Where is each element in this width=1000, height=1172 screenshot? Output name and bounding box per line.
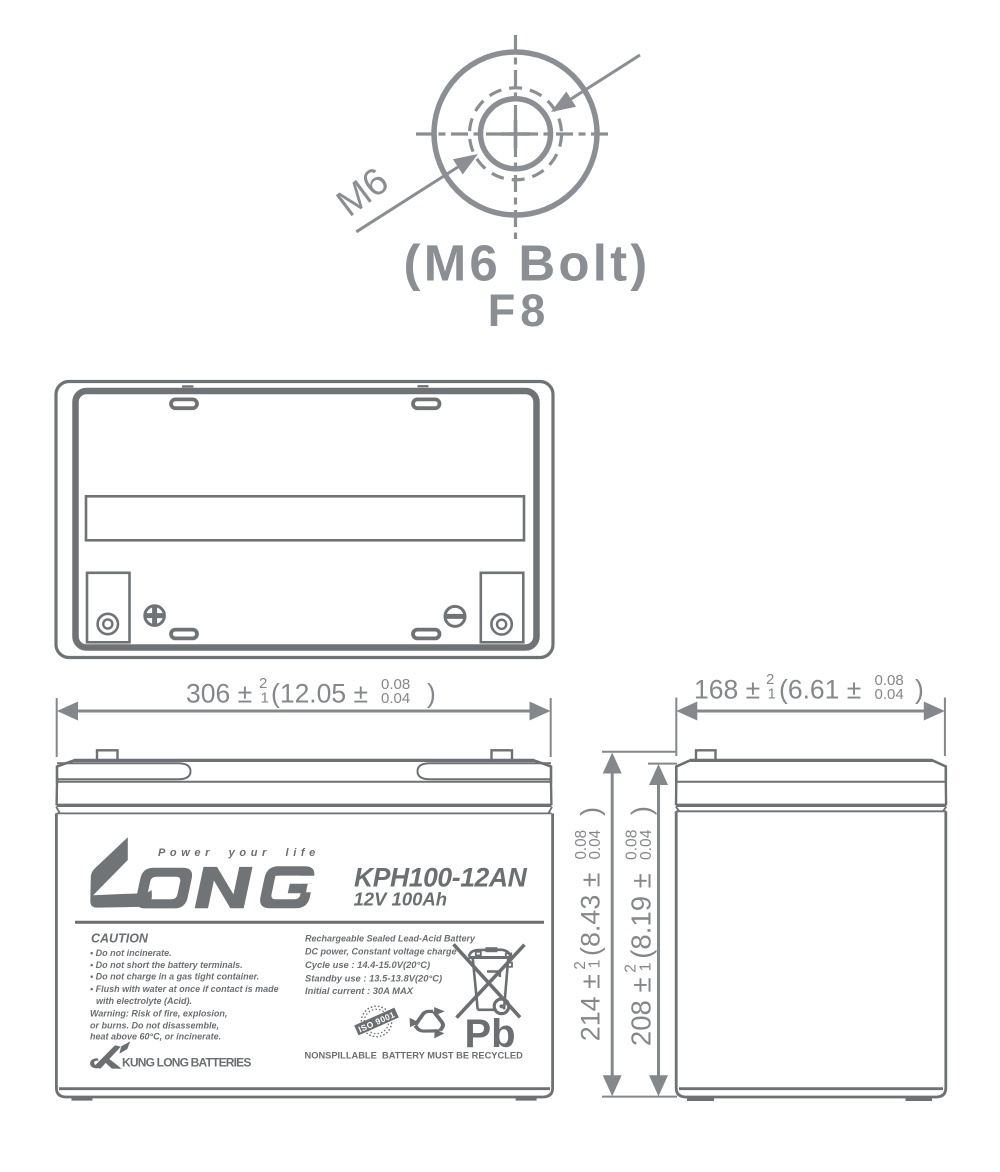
svg-text:Pb: Pb [465, 1012, 516, 1056]
svg-text:Cycle use : 14.4-15.0V(20°C): Cycle use : 14.4-15.0V(20°C) [305, 959, 430, 970]
svg-text:1: 1 [587, 960, 604, 968]
svg-text:Rechargeable Sealed Lead-Acid: Rechargeable Sealed Lead-Acid Battery [305, 934, 476, 944]
svg-text:12V 100Ah: 12V 100Ah [354, 889, 448, 910]
svg-text:(8.19 ±: (8.19 ± [626, 873, 657, 959]
svg-text:• Do not incinerate.: • Do not incinerate. [90, 948, 172, 958]
svg-text:F8: F8 [488, 285, 551, 336]
svg-text:306 ±: 306 ± [186, 679, 252, 709]
svg-text:(12.05 ±: (12.05 ± [271, 679, 368, 709]
svg-text:Initial current : 30A MAX: Initial current : 30A MAX [305, 985, 414, 996]
svg-text:1: 1 [638, 963, 655, 972]
svg-text:): ) [915, 675, 924, 705]
svg-text:or burns. Do not disassemble,: or burns. Do not disassemble, [90, 1021, 219, 1031]
svg-text:208 ±: 208 ± [626, 977, 657, 1046]
svg-text:with electrolyte (Acid).: with electrolyte (Acid). [96, 996, 192, 1006]
svg-text:heat above 60°C, or incinerate: heat above 60°C, or incinerate. [90, 1032, 221, 1042]
svg-text:1: 1 [768, 686, 776, 703]
svg-text:Standby use : 13.5-13.8V(20°C): Standby use : 13.5-13.8V(20°C) [305, 972, 442, 983]
svg-text:0.04: 0.04 [875, 686, 904, 703]
svg-text:KUNG LONG BATTERIES: KUNG LONG BATTERIES [122, 1056, 251, 1070]
svg-text:): ) [626, 806, 657, 815]
svg-text:0.04: 0.04 [381, 690, 410, 707]
svg-text:(M6 Bolt): (M6 Bolt) [404, 235, 651, 292]
svg-text:Power your life: Power your life [158, 847, 320, 859]
svg-text:0.04: 0.04 [638, 829, 655, 860]
svg-text:0.04: 0.04 [587, 829, 604, 859]
svg-text:CAUTION: CAUTION [91, 932, 149, 946]
svg-text:214 ±: 214 ± [576, 974, 606, 1041]
svg-text:): ) [576, 807, 606, 816]
svg-text:1: 1 [261, 690, 269, 707]
svg-text:168 ±: 168 ± [694, 675, 760, 705]
svg-text:): ) [427, 679, 436, 709]
svg-text:• Do not charge in a gas tight: • Do not charge in a gas tight container… [90, 972, 259, 982]
svg-text:• Flush with water at once if: • Flush with water at once if contact is… [90, 984, 279, 994]
svg-text:Warning: Risk of fire, explosi: Warning: Risk of fire, explosion, [90, 1009, 227, 1019]
svg-text:(8.43 ±: (8.43 ± [576, 872, 606, 955]
svg-text:NONSPILLABLE BATTERY MUST BE: NONSPILLABLE BATTERY MUST BE RECYCLED [305, 1051, 524, 1061]
svg-text:(6.61 ±: (6.61 ± [779, 675, 861, 705]
svg-text:DC power, Constant voltage cha: DC power, Constant voltage charge [305, 947, 457, 957]
svg-text:• Do not short the battery ter: • Do not short the battery terminals. [90, 960, 243, 970]
